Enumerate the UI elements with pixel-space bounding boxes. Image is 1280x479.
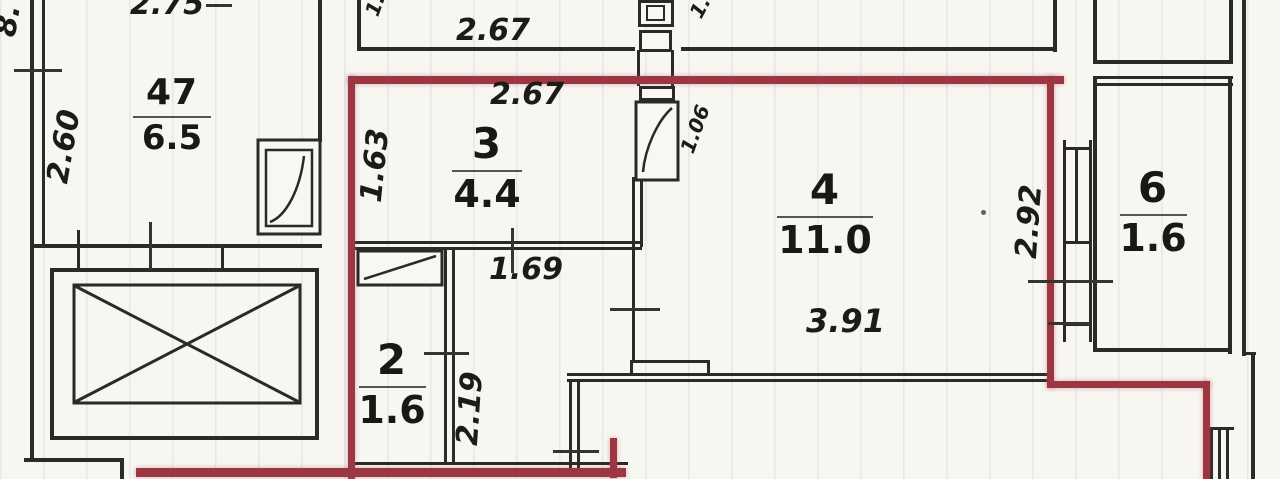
room-label-6: 6 1.6 (1103, 166, 1203, 259)
room-number: 6 (1103, 166, 1203, 210)
room-area: 4.4 (437, 175, 537, 215)
outer-wall-left-inner (42, 0, 45, 248)
apartment-outline-top (348, 76, 1064, 84)
room4-left-wall-b (640, 177, 643, 247)
apartment-outline-bottom-cap (610, 438, 617, 478)
outer-wall-bottom-drop (120, 458, 124, 479)
window-sill-hatch-2 (1218, 427, 1221, 479)
dim-partial-1a: 1. (360, 0, 391, 23)
room47-bottom-wall (30, 244, 322, 248)
scan-speck (981, 210, 986, 215)
dim-room4-height: 2.92 (1010, 180, 1049, 262)
outer-wall-right-lower (1251, 352, 1255, 479)
right-channel-rung-2 (1063, 241, 1092, 244)
room-label-47: 47 6.5 (122, 74, 222, 156)
tick-left-wall (14, 69, 62, 72)
lower-room-top-wall-a (567, 373, 1047, 376)
right-channel-wall-c (1075, 150, 1078, 244)
dim-left-top-partial: 8. (0, 0, 28, 43)
vent-duct-box-1-inner (646, 5, 665, 21)
apartment-outline-right (1047, 76, 1054, 388)
dim-partial-1b: 1. (683, 0, 717, 25)
right-channel-rung-1 (1063, 147, 1092, 150)
room6-bottom-wall (1093, 348, 1232, 352)
tick-room47-bottom (149, 222, 152, 270)
room-number: 2 (342, 338, 442, 382)
door-symbol-room2 (356, 249, 446, 289)
room-label-4: 4 11.0 (775, 168, 875, 261)
tick-right-wall-short (1048, 322, 1090, 325)
room6-right-wall (1228, 76, 1232, 354)
room-area: 1.6 (342, 391, 442, 431)
dim-upper-room-width: 2.67 (456, 14, 530, 47)
lower-room-notch-right (707, 360, 710, 376)
door-symbol-room47 (256, 138, 324, 238)
dim-room4-width: 3.91 (806, 304, 885, 339)
room-number: 4 (775, 168, 875, 212)
outer-wall-bottom-step (24, 458, 124, 462)
tick-right-wall-long (1028, 280, 1113, 283)
room4-left-wall-a (632, 177, 635, 363)
upper-room-right-wall (1053, 0, 1057, 52)
dim-room3-width: 2.67 (490, 78, 564, 111)
apartment-outline-bottom-right-v (1203, 381, 1210, 479)
dim-room3-inner-width: 1.69 (489, 253, 563, 286)
room-number: 3 (437, 122, 537, 166)
room-area: 6.5 (122, 121, 222, 157)
dim-top-partial: 2.75 (130, 0, 204, 21)
dim-room2-height: 2.19 (451, 367, 490, 449)
vent-duct-box-2 (639, 30, 672, 52)
top-right-room-left-wall (1093, 0, 1097, 64)
upper-room-bottom-wall-right (681, 47, 1055, 51)
shaft-connector-wall-1 (77, 230, 80, 268)
room-number: 47 (122, 74, 222, 112)
room47-right-wall (318, 0, 322, 142)
dim-room3-height: 1.63 (354, 124, 395, 207)
lower-room-left-wall-a (569, 379, 572, 471)
apartment-outline-bottom-right-h (1047, 381, 1210, 388)
room6-top-wall-a (1093, 76, 1233, 79)
door-symbol-room4 (634, 100, 682, 184)
room2-bottom-wall (348, 462, 628, 465)
room-label-2: 2 1.6 (342, 338, 442, 431)
floor-plan: 47 6.5 3 4.4 2 1.6 4 11.0 6 1.6 2.75 8. … (0, 0, 1280, 479)
dim-room47-height: 2.60 (41, 104, 87, 189)
room6-top-wall-b (1093, 83, 1233, 86)
room6-left-wall (1093, 76, 1097, 352)
lower-room-left-wall-b (577, 379, 580, 471)
window-sill-hatch-3 (1226, 427, 1229, 479)
lower-room-top-wall-b (567, 379, 1047, 382)
tick-lower-room-wall (553, 450, 599, 453)
room-area: 1.6 (1103, 219, 1203, 259)
elevator-shaft-symbol (72, 283, 302, 405)
tick-top (206, 4, 232, 7)
vent-duct-box-3 (639, 86, 675, 101)
lower-room-notch-top (630, 360, 710, 363)
room-area: 11.0 (775, 221, 875, 261)
top-right-room-right-wall (1229, 0, 1233, 64)
outer-wall-right-upper (1242, 0, 1246, 356)
shaft-connector-wall-2 (221, 248, 224, 268)
window-sill-hatch-1 (1210, 427, 1213, 479)
lower-room-notch-left (630, 360, 633, 376)
tick-corridor-wall (610, 308, 660, 311)
apartment-outline-bottom-left (136, 468, 626, 477)
top-right-room-bottom-wall (1093, 60, 1233, 64)
room3-bottom-wall-a (352, 241, 642, 244)
room-label-3: 3 4.4 (437, 122, 537, 215)
